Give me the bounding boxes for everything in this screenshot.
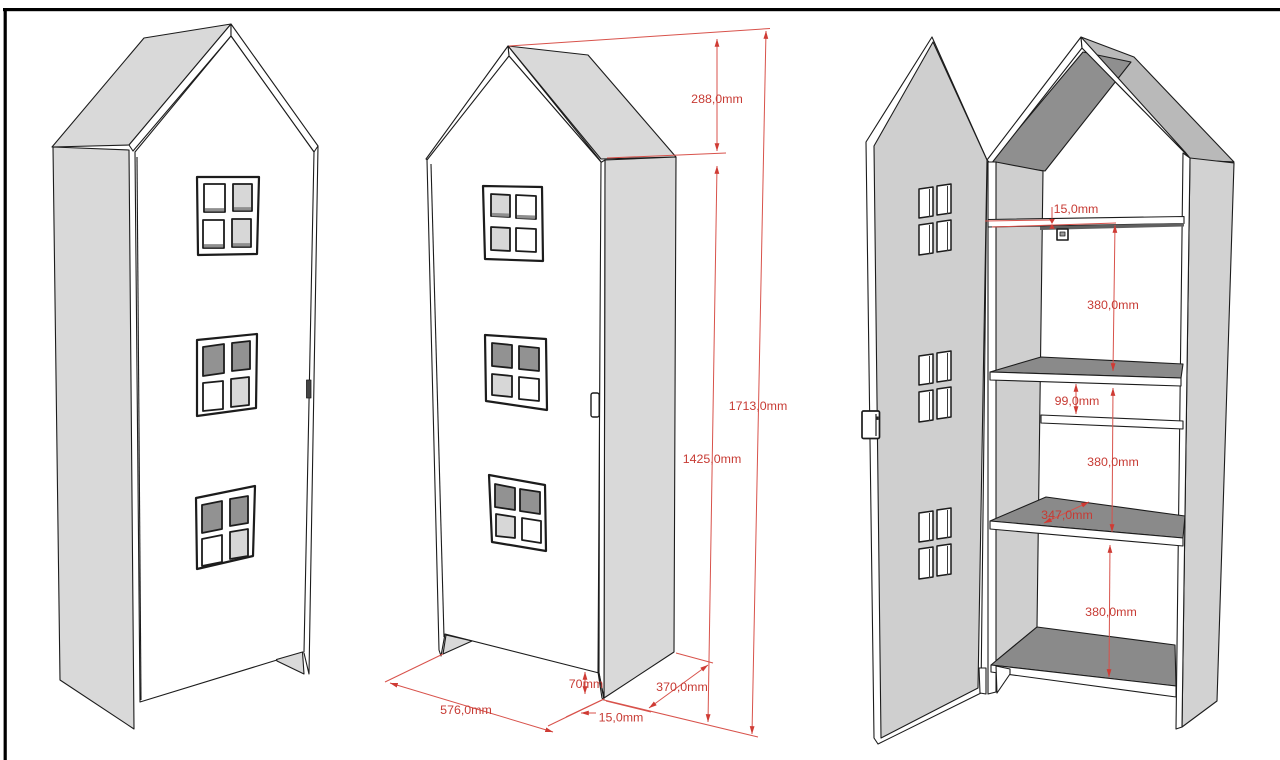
svg-text:288,0mm: 288,0mm — [691, 92, 743, 106]
svg-text:1425,0mm: 1425,0mm — [683, 452, 742, 466]
svg-text:380,0mm: 380,0mm — [1087, 455, 1139, 469]
svg-text:380,0mm: 380,0mm — [1087, 298, 1139, 312]
svg-text:1713,0mm: 1713,0mm — [729, 399, 788, 413]
svg-text:15,0mm: 15,0mm — [599, 711, 644, 725]
svg-text:15,0mm: 15,0mm — [1054, 202, 1099, 216]
svg-text:99,0mm: 99,0mm — [1055, 394, 1100, 408]
svg-text:576,0mm: 576,0mm — [440, 703, 492, 717]
svg-text:347,0mm: 347,0mm — [1041, 508, 1093, 522]
svg-text:380,0mm: 380,0mm — [1085, 605, 1137, 619]
svg-text:70mm: 70mm — [569, 677, 603, 691]
svg-text:370,0mm: 370,0mm — [656, 680, 708, 694]
